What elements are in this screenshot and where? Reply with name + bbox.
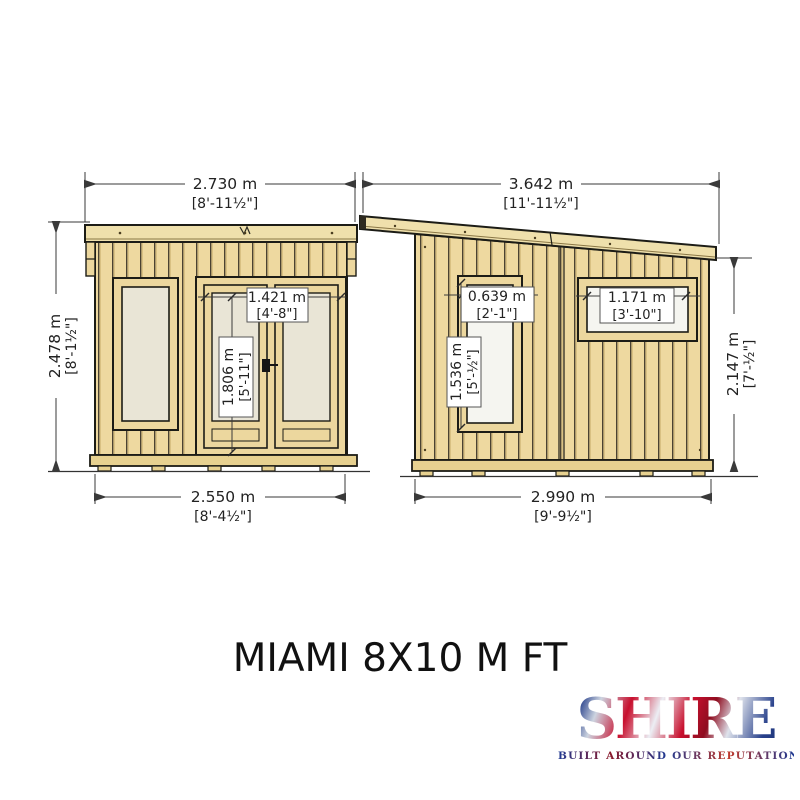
dim-front-width-imperial: [8'-11½"] [192,196,259,212]
front-window [113,278,178,430]
door-handle [262,359,270,372]
roof-end-cap [360,216,366,229]
dim-front-base-metric: 2.550 m [191,488,255,506]
dim-side-width-metric: 3.642 m [509,175,573,193]
product-dimension-diagram: 2.730 m [8'-11½"] 3.642 m [11'-11½"] 2.4… [0,0,800,800]
dim-side-base-metric: 2.990 m [531,488,595,506]
dim-front-width-metric: 2.730 m [193,175,257,193]
dim-front-height-imperial: [8'-1½"] [64,317,80,375]
dim-side-base-imperial: [9'-9½"] [534,509,592,525]
dim-door-height-imperial: [5'-11"] [238,352,253,401]
dim-side-height-metric: 2.147 m [724,332,742,396]
shire-logo-wordmark: SHIRE [558,690,794,749]
dim-front-base-imperial: [8'-4½"] [194,509,252,525]
dim-front-height-metric: 2.478 m [46,314,64,378]
dim-side-height: 2.147 m [7'-½"] [716,258,758,471]
dim-side-window-height-imperial: [5'-½"] [466,349,481,394]
dim-side-window-height-metric: 1.536 m [449,343,465,401]
side-elevation [360,216,716,476]
shire-logo-tagline: BUILT AROUND OUR REPUTATION [558,750,794,762]
dim-door-width-imperial: [4'-8"] [257,307,298,322]
product-title: MIAMI 8X10 M FT [0,636,800,681]
dim-side-height-imperial: [7'-½"] [742,340,758,389]
dim-door-width-metric: 1.421 m [248,290,306,306]
side-base [412,460,713,476]
dim-rear-window-width-imperial: [3'-10"] [612,308,661,323]
dim-door-height-metric: 1.806 m [221,348,237,406]
front-base [90,455,357,471]
front-window-glass [122,287,169,421]
dim-front-base: 2.550 m [8'-4½"] [95,474,345,525]
dim-front-height: 2.478 m [8'-1½"] [46,222,90,471]
dim-side-base: 2.990 m [9'-9½"] [415,479,711,525]
dim-side-window-width-imperial: [2'-1"] [477,307,518,322]
dim-rear-window-width-metric: 1.171 m [608,290,666,306]
dim-front-width: 2.730 m [8'-11½"] [85,172,355,222]
dim-side-width-imperial: [11'-11½"] [503,196,578,212]
shire-logo: SHIRE BUILT AROUND OUR REPUTATION [558,690,794,762]
dim-side-window-width-metric: 0.639 m [468,289,526,305]
